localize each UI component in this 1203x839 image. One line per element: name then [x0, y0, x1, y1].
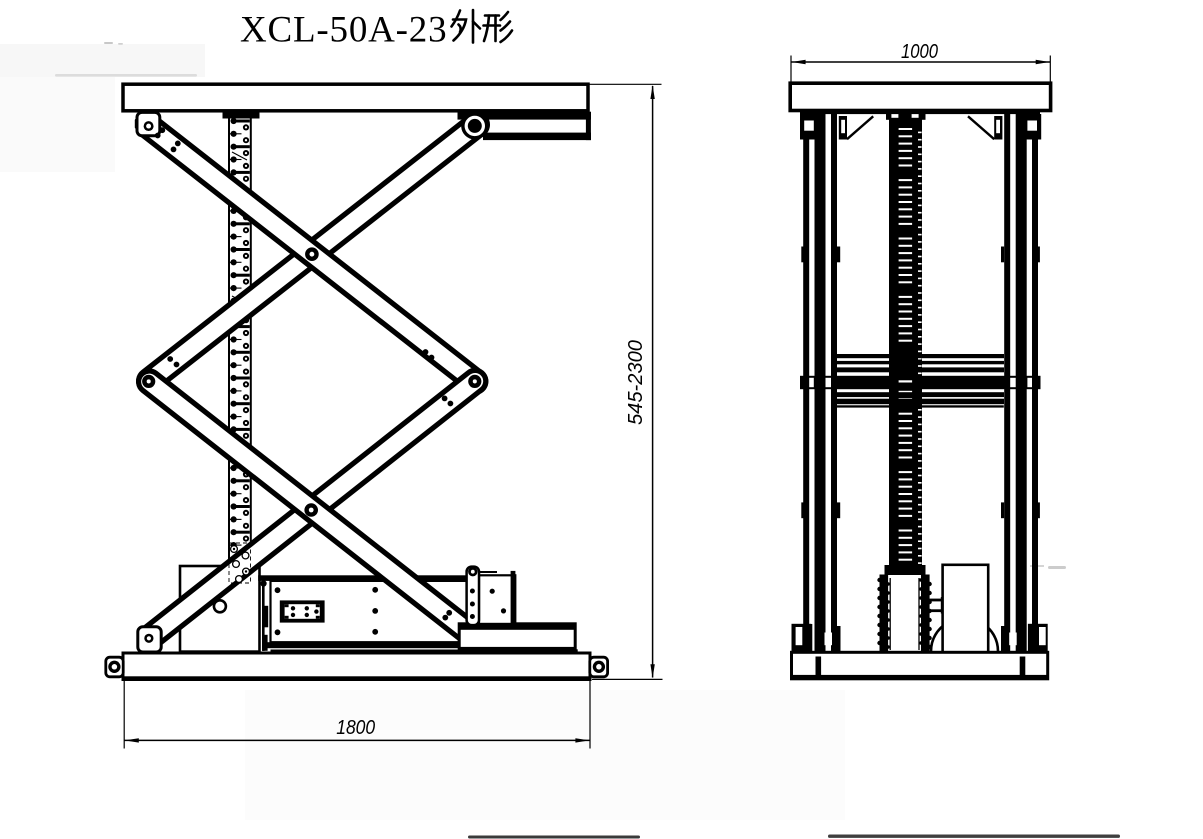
- svg-text:545-2300: 545-2300: [625, 340, 647, 425]
- svg-text:XCL-50A-23: XCL-50A-23: [240, 10, 447, 51]
- svg-text:1800: 1800: [336, 716, 376, 739]
- svg-text:1000: 1000: [901, 40, 938, 63]
